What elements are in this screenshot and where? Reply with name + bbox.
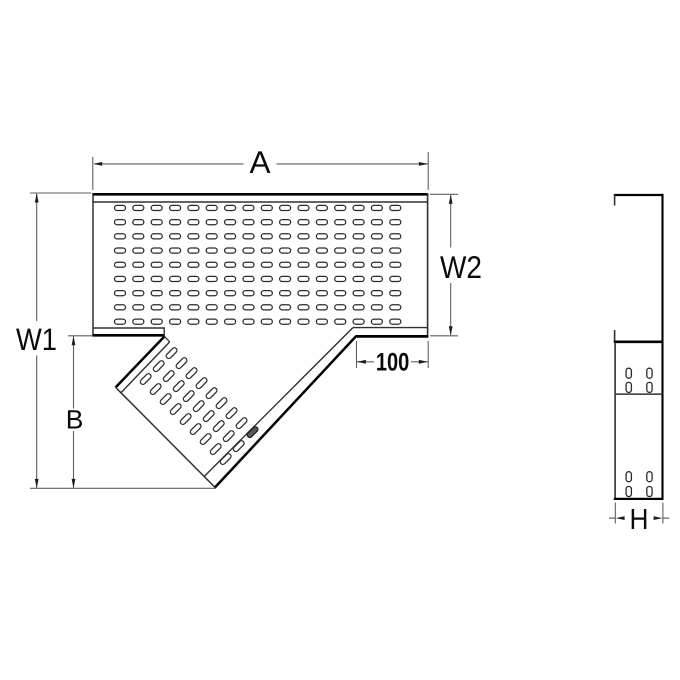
svg-text:H: H (630, 504, 649, 536)
svg-text:W1: W1 (16, 322, 57, 357)
svg-text:W2: W2 (440, 249, 482, 285)
svg-text:A: A (249, 144, 270, 180)
svg-text:B: B (66, 404, 84, 434)
svg-text:100: 100 (376, 349, 410, 377)
